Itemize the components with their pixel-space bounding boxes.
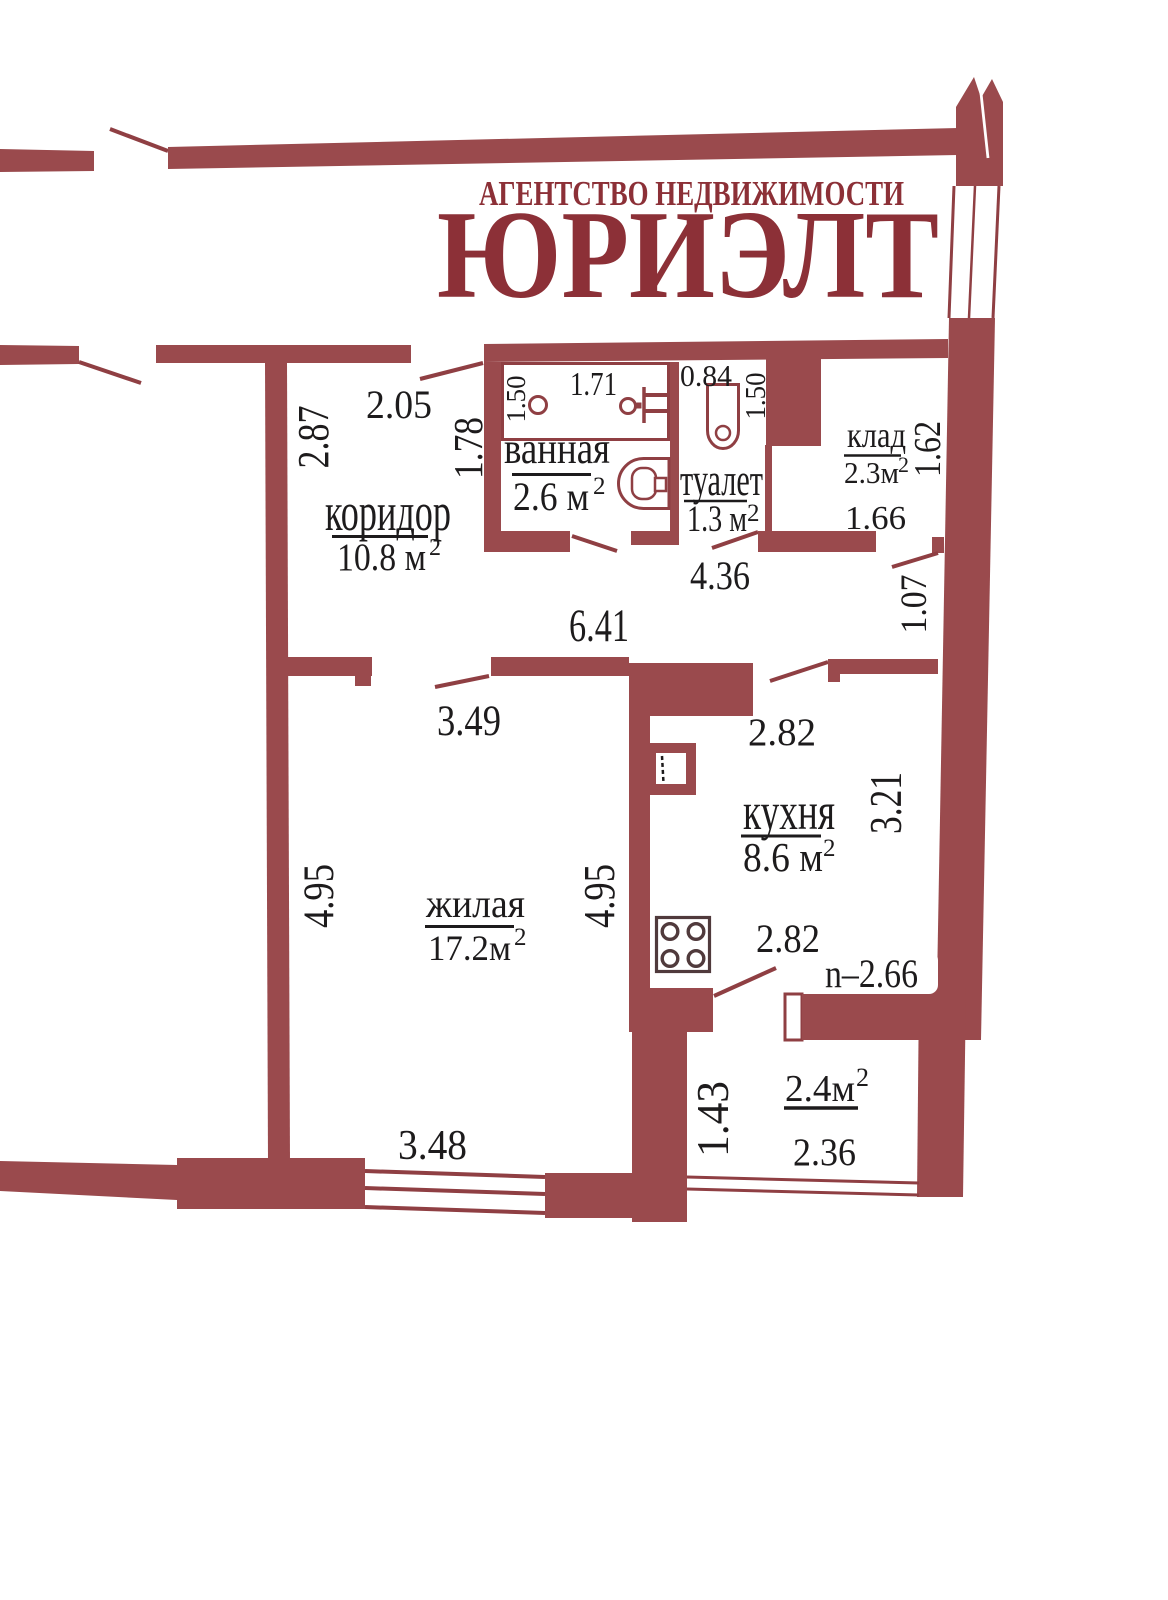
svg-text:туалет: туалет [680, 454, 763, 505]
svg-text:17.2м: 17.2м [428, 928, 511, 968]
svg-text:1.43: 1.43 [688, 1081, 738, 1157]
svg-text:6.41: 6.41 [569, 600, 629, 652]
svg-text:2.4м: 2.4м [785, 1068, 855, 1110]
svg-text:1.50: 1.50 [501, 376, 531, 423]
svg-text:2.36: 2.36 [793, 1131, 856, 1174]
svg-text:0.84: 0.84 [680, 358, 732, 393]
svg-text:3.21: 3.21 [861, 772, 911, 834]
svg-text:2.82: 2.82 [756, 916, 820, 961]
svg-text:клад: клад [847, 415, 906, 455]
svg-text:2.6 м: 2.6 м [513, 474, 589, 519]
svg-text:4.36: 4.36 [690, 553, 750, 598]
svg-text:2: 2 [823, 835, 836, 862]
svg-text:n–2.66: n–2.66 [825, 951, 918, 996]
svg-text:2.82: 2.82 [748, 711, 816, 754]
svg-text:3.49: 3.49 [437, 698, 501, 745]
svg-text:коридор: коридор [325, 482, 451, 542]
svg-text:2.3м: 2.3м [844, 455, 899, 490]
svg-text:10.8 м: 10.8 м [337, 536, 426, 579]
svg-text:2: 2 [856, 1063, 869, 1092]
svg-text:2: 2 [747, 500, 760, 527]
svg-text:2: 2 [593, 473, 606, 500]
svg-text:2.87: 2.87 [289, 406, 338, 469]
svg-text:1.62: 1.62 [907, 421, 949, 477]
svg-text:1.66: 1.66 [845, 500, 906, 537]
svg-text:2: 2 [514, 924, 527, 951]
svg-text:4.95: 4.95 [575, 864, 624, 928]
svg-text:2: 2 [429, 535, 441, 561]
svg-text:3.48: 3.48 [398, 1123, 467, 1169]
svg-text:1.71: 1.71 [570, 366, 617, 403]
svg-text:жилая: жилая [425, 881, 525, 926]
svg-text:1.78: 1.78 [445, 417, 491, 479]
svg-text:2.05: 2.05 [366, 382, 432, 427]
svg-text:8.6 м: 8.6 м [743, 834, 823, 880]
svg-text:1.3 м: 1.3 м [687, 499, 747, 540]
svg-text:1.07: 1.07 [894, 575, 935, 634]
svg-text:кухня: кухня [743, 783, 835, 841]
svg-text:ЮРИЭЛТ: ЮРИЭЛТ [437, 186, 939, 325]
svg-text:1.50: 1.50 [740, 373, 772, 420]
svg-text:4.95: 4.95 [296, 864, 343, 928]
svg-text:ванная: ванная [504, 424, 610, 473]
